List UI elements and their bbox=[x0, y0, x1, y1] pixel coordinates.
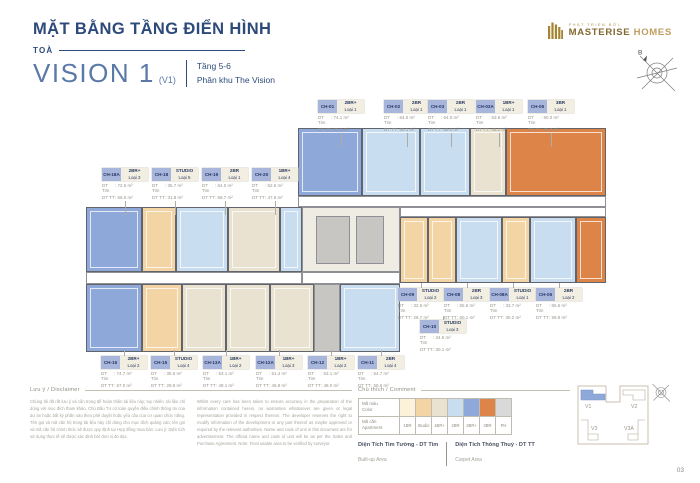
unit-area-carpet: DT TT: 30.2 m² bbox=[490, 315, 536, 321]
unit-area-builtup: DT Tim: 65.6 m² bbox=[536, 303, 582, 314]
unit-type: 1BR+Loại 4 bbox=[271, 168, 298, 181]
unit-callout-box: CH-082BRLoại 3 bbox=[444, 288, 490, 301]
leader-line bbox=[499, 133, 500, 147]
leader-line bbox=[467, 283, 468, 288]
unit-area-builtup: DT Tim: 74.7 m² bbox=[101, 371, 147, 382]
leader-line bbox=[275, 201, 276, 215]
unit-area-builtup: DT Tim: 53.5 m² bbox=[476, 115, 522, 126]
unit-area-builtup: DT Tim: 64.0 m² bbox=[202, 183, 248, 194]
unit-area-carpet: DT TT: 48.1 m² bbox=[203, 383, 249, 389]
unit-code: CH-10 bbox=[420, 320, 439, 333]
unit-code: CH-19 bbox=[202, 168, 221, 181]
unit-type: 2BRLoại 2 bbox=[555, 288, 582, 301]
unit-callout-box: CH-121BR+Loại 2 bbox=[308, 356, 354, 369]
unit-area-builtup: DT Tim: 64.0 m² bbox=[428, 115, 474, 126]
unit-code: CH-12 bbox=[308, 356, 327, 369]
unit-callout-ch-15: CH-15STUDIOLoại 4DT Tim: 35.5 m²DT TT: 2… bbox=[151, 356, 197, 389]
unit-code: CH-02 bbox=[384, 100, 403, 113]
unit-type: 2BRLoại 1 bbox=[403, 100, 430, 113]
unit-type: STUDIOLoại 1 bbox=[509, 288, 536, 301]
leader-line bbox=[175, 201, 176, 215]
unit-area-builtup: DT Tim: 33.7 m² bbox=[490, 303, 536, 314]
unit-callout-box: CH-192BRLoại 1 bbox=[202, 168, 248, 181]
unit-code: CH-06 bbox=[536, 288, 555, 301]
unit-area-builtup: DT Tim: 65.6 m² bbox=[444, 303, 490, 314]
unit-type: STUDIOLoại 5 bbox=[171, 168, 198, 181]
unit-type: 2BR+Loại 2 bbox=[120, 356, 147, 369]
unit-callout-ch-03a: CH-03A1BR+Loại 1DT Tim: 53.5 m²DT TT: 48… bbox=[476, 100, 522, 133]
leader-line bbox=[451, 133, 452, 147]
unit-callout-ch-08a: CH-08ASTUDIOLoại 1DT Tim: 33.7 m²DT TT: … bbox=[490, 288, 536, 321]
unit-type: 1BR+Loại 3 bbox=[275, 356, 302, 369]
unit-code: CH-05 bbox=[528, 100, 547, 113]
unit-code: CH-18 bbox=[152, 168, 171, 181]
unit-area-carpet: DT TT: 67.0 m² bbox=[101, 383, 147, 389]
leader-line bbox=[279, 350, 280, 356]
unit-type: 2BRLoại 1 bbox=[447, 100, 474, 113]
unit-area-builtup: DT Tim: 64.7 m² bbox=[358, 371, 404, 382]
unit-callout-box: CH-162BR+Loại 2 bbox=[101, 356, 147, 369]
unit-area-builtup: DT Tim: 34.5 m² bbox=[420, 335, 466, 346]
leader-line bbox=[551, 133, 552, 147]
unit-code: CH-03A bbox=[476, 100, 495, 113]
unit-callout-box: CH-112BRLoại 4 bbox=[358, 356, 404, 369]
leader-line bbox=[225, 201, 226, 215]
leader-line bbox=[125, 201, 126, 215]
unit-code: CH-08 bbox=[444, 288, 463, 301]
unit-callout-ch-05: CH-053BRLoại 1DT Tim: 90.0 m²DT TT: 85.7… bbox=[528, 100, 574, 133]
unit-type: 1BR+Loại 2 bbox=[222, 356, 249, 369]
leader-line bbox=[443, 316, 444, 320]
leader-line bbox=[124, 350, 125, 356]
leader-line bbox=[226, 350, 227, 356]
leader-line bbox=[331, 350, 332, 356]
unit-type: STUDIOLoại 2 bbox=[417, 288, 444, 301]
unit-callout-ch-02: CH-022BRLoại 1DT Tim: 64.0 m²DT TT: 59.1… bbox=[384, 100, 430, 133]
unit-callout-ch-12: CH-121BR+Loại 2DT Tim: 53.1 m²DT TT: 48.… bbox=[308, 356, 354, 389]
unit-area-carpet: DT TT: 46.9 m² bbox=[256, 383, 302, 389]
unit-callout-ch-18: CH-18STUDIOLoại 5DT Tim: 35.7 m²DT TT: 3… bbox=[152, 168, 198, 201]
unit-area-builtup: DT Tim: 52.6 m² bbox=[252, 183, 298, 194]
unit-area-builtup: DT Tim: 90.0 m² bbox=[528, 115, 574, 126]
unit-callout-ch-18a: CH-18A2BR+Loại 3DT Tim: 72.5 m²DT TT: 66… bbox=[102, 168, 148, 201]
unit-callout-ch-03: CH-032BRLoại 1DT Tim: 64.0 m²DT TT: 59.0… bbox=[428, 100, 474, 133]
unit-callout-box: CH-062BRLoại 2 bbox=[536, 288, 582, 301]
unit-area-builtup: DT Tim: 72.5 m² bbox=[102, 183, 148, 194]
unit-callout-ch-19: CH-192BRLoại 1DT Tim: 64.0 m²DT TT: 58.7… bbox=[202, 168, 248, 201]
unit-callouts: CH-012BR+Loại 1DT Tim: 74.1 m²DT TT: 67.… bbox=[0, 0, 700, 483]
unit-callout-ch-11: CH-112BRLoại 4DT Tim: 64.7 m²DT TT: 59.6… bbox=[358, 356, 404, 389]
unit-callout-box: CH-022BRLoại 1 bbox=[384, 100, 430, 113]
unit-callout-box: CH-12A1BR+Loại 3 bbox=[256, 356, 302, 369]
unit-area-builtup: DT Tim: 74.1 m² bbox=[318, 115, 364, 126]
unit-callout-box: CH-012BR+Loại 1 bbox=[318, 100, 364, 113]
brochure-page: MẶT BẰNG TẦNG ĐIỂN HÌNH TOÀ VISION 1 (V1… bbox=[0, 0, 700, 483]
leader-line bbox=[381, 350, 382, 356]
unit-code: CH-03 bbox=[428, 100, 447, 113]
unit-callout-box: CH-08ASTUDIOLoại 1 bbox=[490, 288, 536, 301]
unit-area-builtup: DT Tim: 35.5 m² bbox=[151, 371, 197, 382]
unit-area-builtup: DT Tim: 51.4 m² bbox=[256, 371, 302, 382]
unit-area-carpet: DT TT: 59.8 m² bbox=[536, 315, 582, 321]
unit-type: 2BR+Loại 1 bbox=[337, 100, 364, 113]
unit-area-builtup: DT Tim: 64.0 m² bbox=[384, 115, 430, 126]
unit-callout-ch-13a: CH-13A1BR+Loại 2DT Tim: 53.1 m²DT TT: 48… bbox=[203, 356, 249, 389]
unit-code: CH-01 bbox=[318, 100, 337, 113]
unit-code: CH-20 bbox=[252, 168, 271, 181]
unit-code: CH-09 bbox=[398, 288, 417, 301]
unit-area-builtup: DT Tim: 35.7 m² bbox=[152, 183, 198, 194]
leader-line bbox=[513, 283, 514, 288]
unit-callout-box: CH-053BRLoại 1 bbox=[528, 100, 574, 113]
unit-callout-ch-08: CH-082BRLoại 3DT Tim: 65.6 m²DT TT: 60.1… bbox=[444, 288, 490, 321]
unit-callout-ch-06: CH-062BRLoại 2DT Tim: 65.6 m²DT TT: 59.8… bbox=[536, 288, 582, 321]
unit-area-carpet: DT TT: 29.8 m² bbox=[151, 383, 197, 389]
unit-callout-box: CH-09STUDIOLoại 2 bbox=[398, 288, 444, 301]
unit-type: STUDIOLoại 4 bbox=[170, 356, 197, 369]
leader-line bbox=[341, 133, 342, 147]
leader-line bbox=[174, 350, 175, 356]
unit-code: CH-18A bbox=[102, 168, 121, 181]
unit-code: CH-15 bbox=[151, 356, 170, 369]
unit-type: 2BRLoại 4 bbox=[377, 356, 404, 369]
unit-callout-box: CH-032BRLoại 1 bbox=[428, 100, 474, 113]
leader-line bbox=[407, 133, 408, 147]
unit-code: CH-12A bbox=[256, 356, 275, 369]
unit-area-builtup: DT Tim: 32.6 m² bbox=[398, 303, 444, 314]
unit-callout-box: CH-13A1BR+Loại 2 bbox=[203, 356, 249, 369]
unit-callout-ch-01: CH-012BR+Loại 1DT Tim: 74.1 m²DT TT: 67.… bbox=[318, 100, 364, 133]
unit-area-carpet: DT TT: 48.0 m² bbox=[308, 383, 354, 389]
unit-callout-ch-16: CH-162BR+Loại 2DT Tim: 74.7 m²DT TT: 67.… bbox=[101, 356, 147, 389]
unit-callout-box: CH-10STUDIOLoại 3 bbox=[420, 320, 466, 333]
unit-type: 2BR+Loại 3 bbox=[121, 168, 148, 181]
unit-area-carpet: DT TT: 30.1 m² bbox=[420, 347, 466, 353]
unit-area-builtup: DT Tim: 53.1 m² bbox=[203, 371, 249, 382]
unit-type: STUDIOLoại 3 bbox=[439, 320, 466, 333]
unit-type: 2BRLoại 1 bbox=[221, 168, 248, 181]
leader-line bbox=[421, 283, 422, 288]
unit-callout-box: CH-18A2BR+Loại 3 bbox=[102, 168, 148, 181]
unit-type: 2BRLoại 3 bbox=[463, 288, 490, 301]
unit-callout-ch-12a: CH-12A1BR+Loại 3DT Tim: 51.4 m²DT TT: 46… bbox=[256, 356, 302, 389]
unit-callout-box: CH-18STUDIOLoại 5 bbox=[152, 168, 198, 181]
unit-code: CH-16 bbox=[101, 356, 120, 369]
unit-code: CH-13A bbox=[203, 356, 222, 369]
unit-code: CH-08A bbox=[490, 288, 509, 301]
unit-area-builtup: DT Tim: 53.1 m² bbox=[308, 371, 354, 382]
unit-area-carpet: DT TT: 59.6 m² bbox=[358, 383, 404, 389]
unit-callout-ch-20: CH-201BR+Loại 4DT Tim: 52.6 m²DT TT: 47.… bbox=[252, 168, 298, 201]
unit-type: 1BR+Loại 2 bbox=[327, 356, 354, 369]
unit-callout-ch-09: CH-09STUDIOLoại 2DT Tim: 32.6 m²DT TT: 2… bbox=[398, 288, 444, 321]
unit-callout-box: CH-15STUDIOLoại 4 bbox=[151, 356, 197, 369]
unit-type: 1BR+Loại 1 bbox=[495, 100, 522, 113]
unit-callout-box: CH-201BR+Loại 4 bbox=[252, 168, 298, 181]
unit-callout-box: CH-03A1BR+Loại 1 bbox=[476, 100, 522, 113]
unit-type: 3BRLoại 1 bbox=[547, 100, 574, 113]
unit-code: CH-11 bbox=[358, 356, 377, 369]
leader-line bbox=[559, 283, 560, 288]
unit-callout-ch-10: CH-10STUDIOLoại 3DT Tim: 34.5 m²DT TT: 3… bbox=[420, 320, 466, 353]
